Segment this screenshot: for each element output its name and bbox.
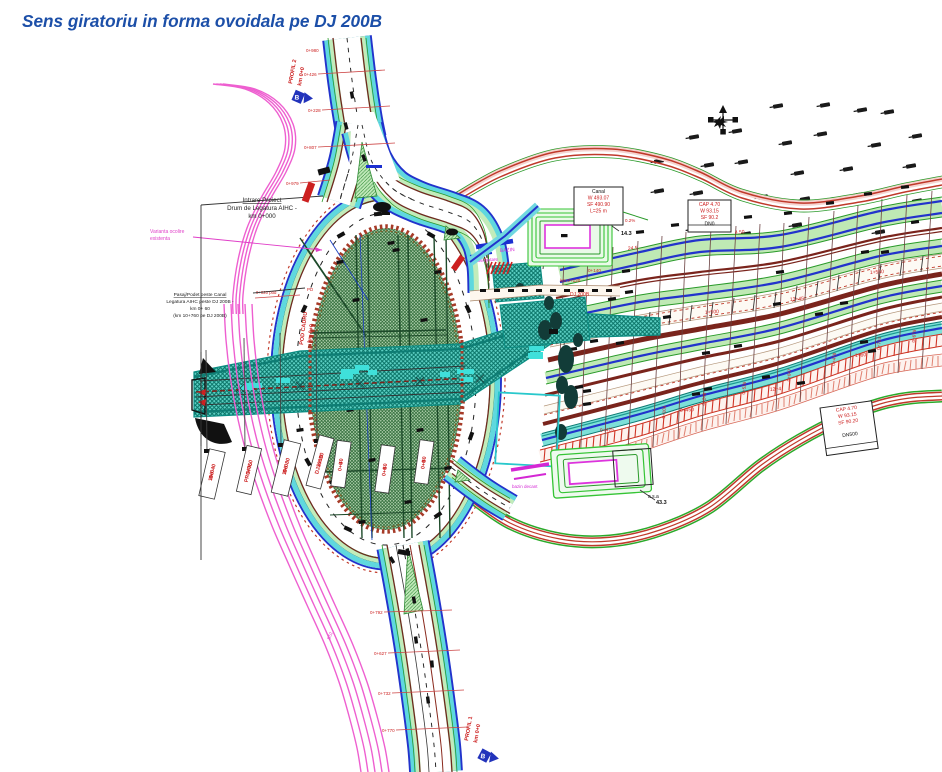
svg-text:0.2%: 0.2% (625, 218, 635, 223)
svg-text:24.5: 24.5 (628, 245, 638, 252)
svg-text:W 93.15: W 93.15 (700, 209, 719, 215)
svg-text:12+4: 12+4 (770, 386, 782, 393)
svg-text:CAP 4.70: CAP 4.70 (699, 202, 721, 208)
svg-text:km 0+120: km 0+120 (560, 278, 581, 283)
svg-text:0+228: 0+228 (308, 108, 321, 113)
svg-text:43.3: 43.3 (656, 500, 667, 506)
svg-text:4.50: 4.50 (735, 229, 745, 236)
svg-text:1+500: 1+500 (705, 309, 720, 316)
svg-text:SF 90.2: SF 90.2 (701, 215, 719, 221)
svg-text:DJ 200B: DJ 200B (570, 292, 590, 298)
svg-text:Sens giratoriu in forma ovoida: Sens giratoriu in forma ovoidala pe DJ 2… (22, 11, 382, 31)
svg-text:bazin decant: bazin decant (512, 484, 538, 489)
svg-text:0+426: 0+426 (304, 72, 317, 77)
svg-text:B: B (294, 94, 300, 101)
svg-text:0+140: 0+140 (588, 268, 601, 273)
svg-text:0+450: 0+450 (680, 407, 695, 414)
svg-text:Legatura AIHC peste DJ 200B -: Legatura AIHC peste DJ 200B - (166, 299, 234, 305)
svg-text:DN0: DN0 (704, 222, 714, 228)
svg-text:Varianta ocolire: Varianta ocolire (150, 229, 185, 235)
svg-text:0+627: 0+627 (374, 651, 387, 656)
svg-text:0+732: 0+732 (378, 691, 391, 696)
svg-text:0+979: 0+979 (286, 181, 299, 186)
svg-text:L=25 m: L=25 m (590, 209, 607, 215)
svg-text:existenta: existenta (150, 236, 170, 242)
svg-text:0+807: 0+807 (304, 145, 317, 150)
svg-text:14.3: 14.3 (621, 231, 632, 237)
svg-text:km 0+000: km 0+000 (248, 213, 276, 220)
svg-text:(km 10+760 pe DJ 200B): (km 10+760 pe DJ 200B) (173, 313, 227, 319)
svg-text:0+980: 0+980 (306, 48, 319, 53)
svg-text:1+550: 1+550 (870, 269, 885, 276)
svg-text:Canal: Canal (592, 189, 605, 195)
svg-text:PD: PD (307, 287, 314, 292)
svg-text:60: 60 (382, 463, 389, 470)
svg-text:40: 40 (338, 458, 345, 465)
svg-text:13+45: 13+45 (790, 296, 805, 303)
svg-text:Drum de Legatura AIHC -: Drum de Legatura AIHC - (227, 205, 297, 212)
svg-text:1+60: 1+60 (855, 352, 867, 359)
svg-text:BAZIN: BAZIN (500, 247, 515, 254)
svg-text:0+792: 0+792 (370, 610, 383, 615)
svg-text:0+425: 0+425 (600, 427, 615, 434)
svg-text:Pasaj/Podet peste Canal: Pasaj/Podet peste Canal (174, 292, 227, 298)
svg-text:0+770: 0+770 (382, 728, 395, 733)
svg-text:W 493.07: W 493.07 (588, 196, 610, 202)
svg-text:SF 490.90: SF 490.90 (587, 202, 610, 208)
svg-text:80: 80 (421, 456, 428, 463)
svg-text:a.s.a: a.s.a (648, 494, 659, 500)
svg-text:km 0+ 60: km 0+ 60 (190, 306, 210, 312)
